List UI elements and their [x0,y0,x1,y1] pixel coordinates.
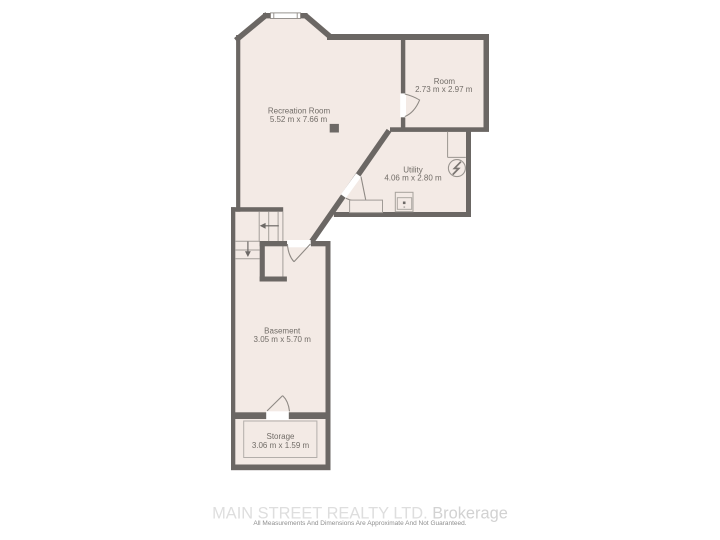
svg-text:5.52 m x 7.66 m: 5.52 m x 7.66 m [270,115,328,124]
svg-text:Basement: Basement [264,326,301,335]
svg-text:3.06 m x 1.59 m: 3.06 m x 1.59 m [252,441,310,450]
svg-text:3.05 m x 5.70 m: 3.05 m x 5.70 m [254,335,312,344]
svg-text:All Measurements And Dimension: All Measurements And Dimensions Are Appr… [253,520,466,527]
svg-text:Storage: Storage [266,432,295,441]
svg-text:2.73 m x 2.97 m: 2.73 m x 2.97 m [415,85,473,94]
svg-text:4.06 m x 2.80 m: 4.06 m x 2.80 m [384,174,442,183]
